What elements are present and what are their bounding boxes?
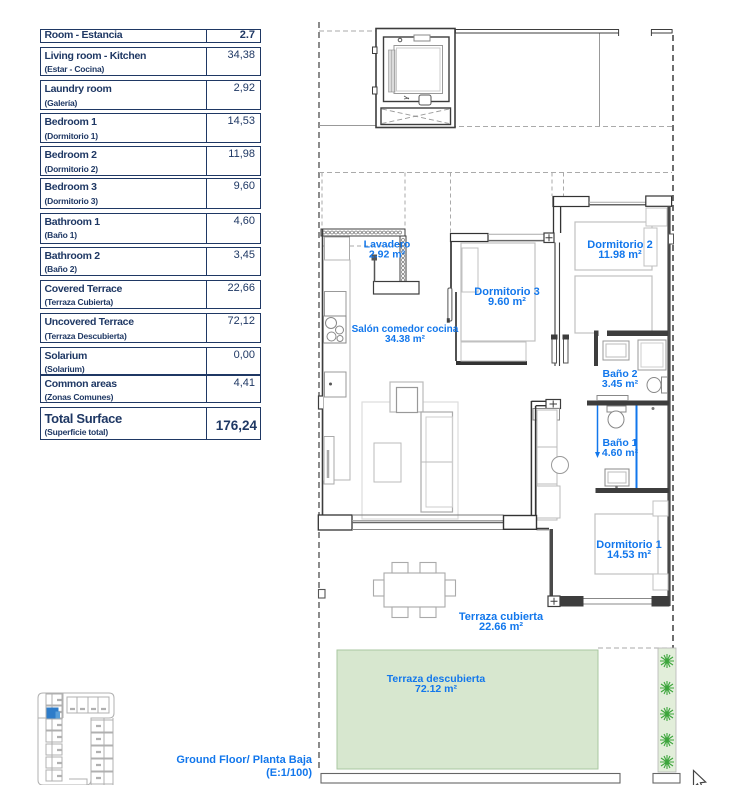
svg-text:34.38 m²: 34.38 m²: [385, 334, 426, 345]
svg-text:72.12 m²: 72.12 m²: [415, 683, 458, 695]
svg-text:4.60 m²: 4.60 m²: [602, 447, 639, 459]
svg-text:2.92 m²: 2.92 m²: [369, 249, 406, 261]
svg-text:3.45 m²: 3.45 m²: [602, 378, 639, 390]
svg-text:22.66 m²: 22.66 m²: [479, 621, 523, 633]
svg-text:14.53 m²: 14.53 m²: [607, 549, 651, 561]
svg-text:9.60 m²: 9.60 m²: [488, 296, 526, 308]
svg-text:11.98 m²: 11.98 m²: [598, 249, 642, 261]
